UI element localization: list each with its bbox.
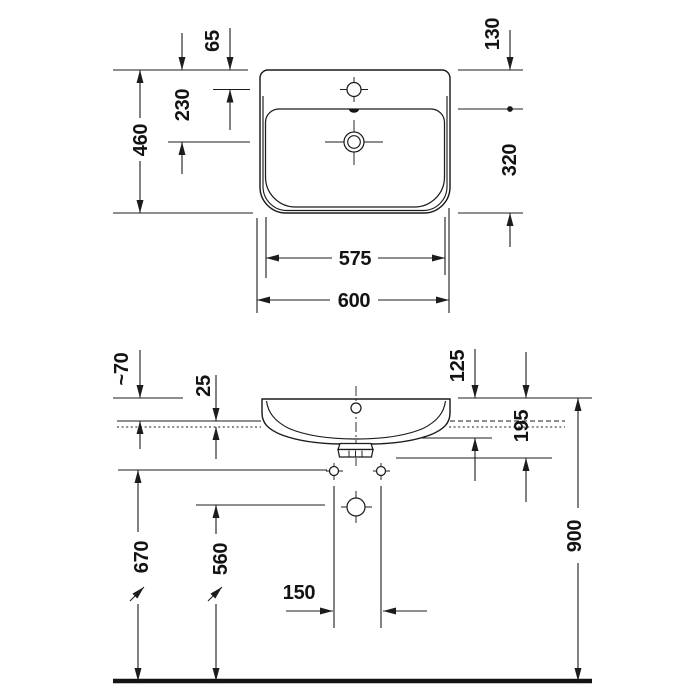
- dim-label-320: 320: [499, 144, 521, 177]
- dim-label-560: 560: [210, 543, 232, 576]
- dimension-230: 230: [172, 33, 194, 174]
- dim-label-195: 195: [511, 410, 533, 443]
- dimension-65: 65: [202, 28, 230, 130]
- plan-view: 65 230 460 130 320 575 600: [113, 18, 523, 313]
- dimension-130: 130: [482, 18, 513, 112]
- front-view: ~70 25 125 195 900 670: [111, 349, 592, 681]
- adjustable-arrow-icon: [208, 587, 222, 601]
- dimension-670: 670: [130, 470, 153, 681]
- dim-label-25: 25: [193, 375, 215, 397]
- dim-label-230: 230: [172, 89, 194, 122]
- dim-label-65: 65: [202, 30, 224, 52]
- dimension-150: 150: [283, 582, 427, 611]
- dimension-25: 25: [193, 375, 216, 459]
- dim-label-460: 460: [130, 124, 152, 157]
- washbasin-technical-drawing: 65 230 460 130 320 575 600: [0, 0, 700, 700]
- dim-label-150: 150: [283, 582, 316, 604]
- drain-outlet-fitting: [338, 444, 373, 458]
- dim-label-575: 575: [339, 248, 372, 270]
- dimension-125: 125: [447, 349, 475, 481]
- bowl-outline-plan: [265, 109, 444, 207]
- dim-label-670: 670: [131, 541, 153, 574]
- dimension-560: 560: [208, 505, 232, 681]
- dim-label-130: 130: [482, 18, 504, 51]
- dim-label-70: ~70: [111, 352, 133, 385]
- dimension-70: ~70: [111, 350, 140, 449]
- dim-label-600: 600: [338, 290, 371, 312]
- fixing-holes: [326, 463, 390, 480]
- dim-label-900: 900: [564, 520, 586, 553]
- dimension-195: 195: [511, 352, 533, 502]
- dimension-320: 320: [499, 144, 521, 247]
- dimension-575: 575: [266, 248, 445, 270]
- dimension-600: 600: [257, 290, 449, 312]
- dimension-dot: [507, 106, 513, 112]
- dim-label-125: 125: [447, 350, 469, 383]
- technical-drawing-page: 65 230 460 130 320 575 600: [0, 0, 700, 700]
- dimension-460: 460: [130, 70, 152, 213]
- tap-hole-front: [351, 403, 361, 413]
- dimension-900: 900: [564, 398, 586, 681]
- adjustable-arrow-icon: [130, 587, 144, 601]
- drain-pipe-center: [341, 491, 372, 523]
